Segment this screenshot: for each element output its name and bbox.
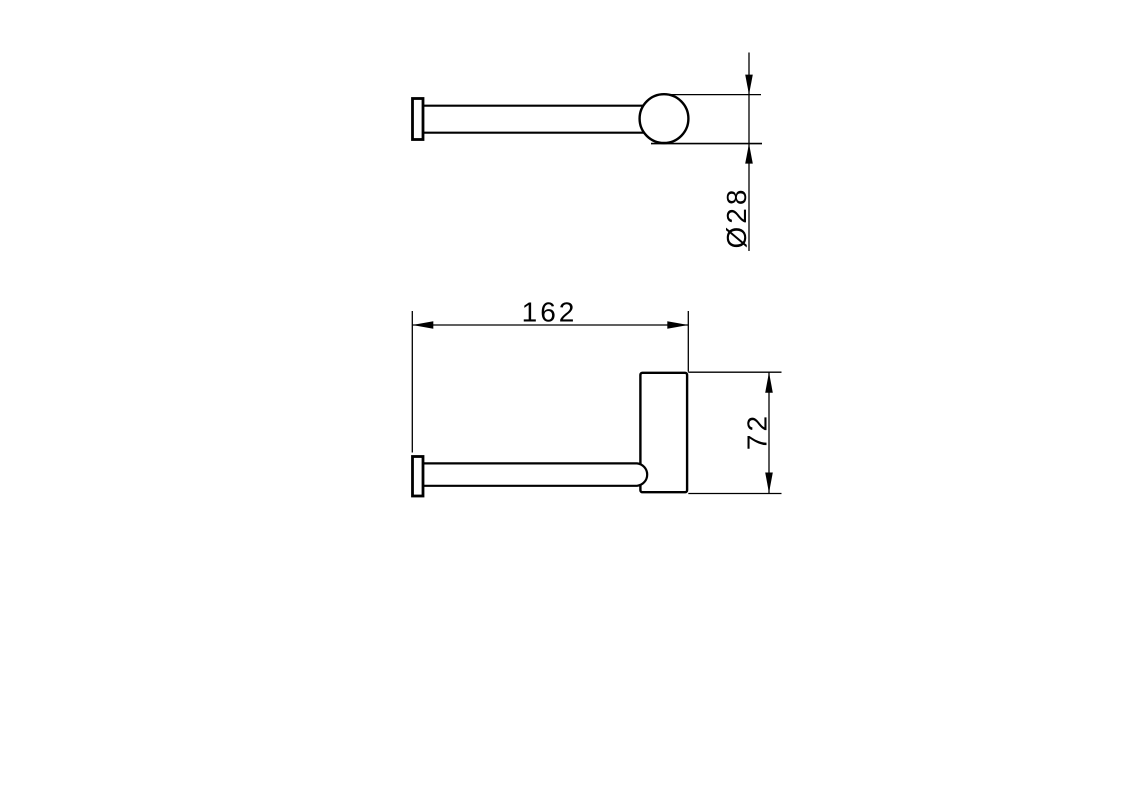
arrowhead-left-icon [412, 321, 433, 329]
drawing-svg: Ø28 162 [0, 0, 1123, 794]
width-dimension-label: 162 [522, 297, 578, 328]
diameter-dimension-label: Ø28 [721, 187, 752, 249]
arrowhead-up-icon [745, 144, 753, 164]
front-view-end-cap [413, 457, 424, 497]
arrowhead-down-icon [765, 473, 773, 494]
height-dimension: 72 [688, 372, 781, 493]
arrowhead-up-icon [765, 372, 773, 393]
top-view: Ø28 [413, 53, 763, 252]
front-view: 162 72 [412, 297, 781, 497]
top-view-end-cap [413, 99, 424, 140]
arrowhead-down-icon [745, 75, 753, 95]
arrowhead-right-icon [667, 321, 688, 329]
front-view-bar [424, 463, 647, 485]
top-view-post-circle [640, 94, 689, 143]
height-dimension-label: 72 [742, 413, 773, 450]
diameter-dimension: Ø28 [651, 53, 762, 252]
technical-drawing: Ø28 162 [0, 0, 1123, 794]
